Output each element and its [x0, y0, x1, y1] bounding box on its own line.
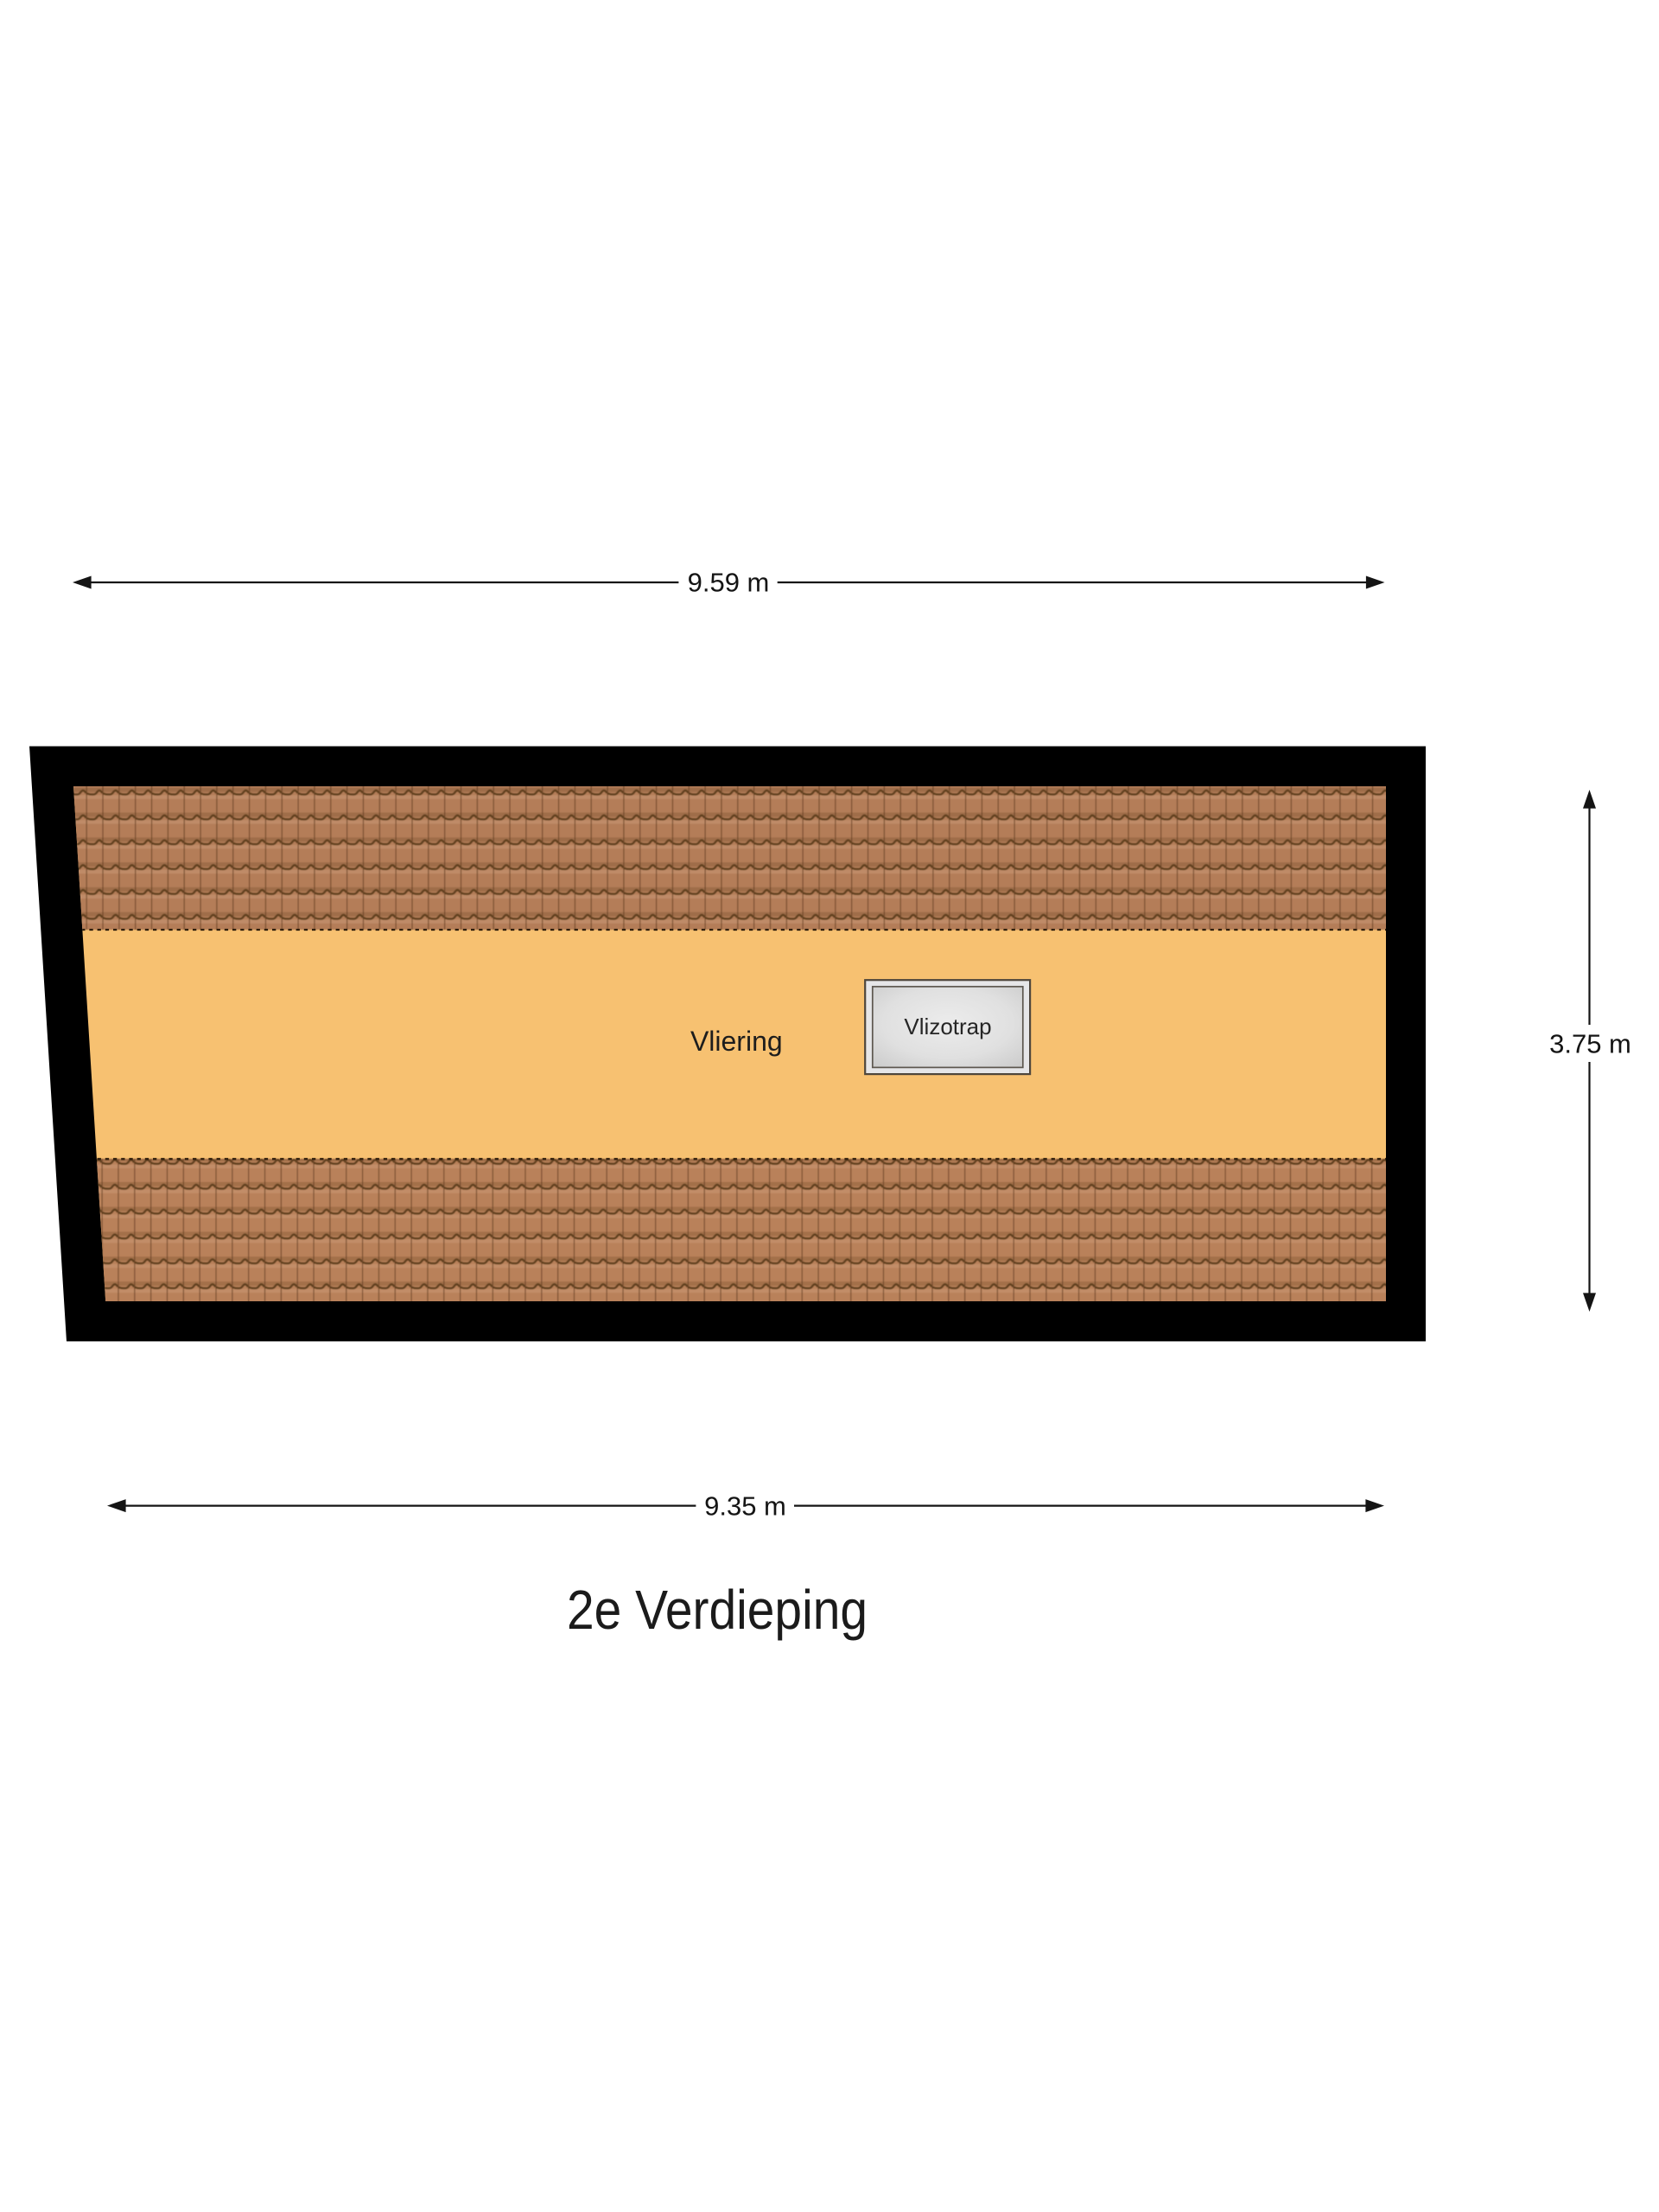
svg-text:9.59 m: 9.59 m	[688, 568, 770, 598]
svg-text:Vlizotrap: Vlizotrap	[904, 1014, 991, 1039]
svg-text:3.75 m: 3.75 m	[1549, 1029, 1631, 1059]
svg-text:9.35 m: 9.35 m	[704, 1491, 786, 1521]
svg-text:2e Verdieping: 2e Verdieping	[567, 1579, 868, 1641]
svg-text:Vliering: Vliering	[690, 1026, 783, 1057]
